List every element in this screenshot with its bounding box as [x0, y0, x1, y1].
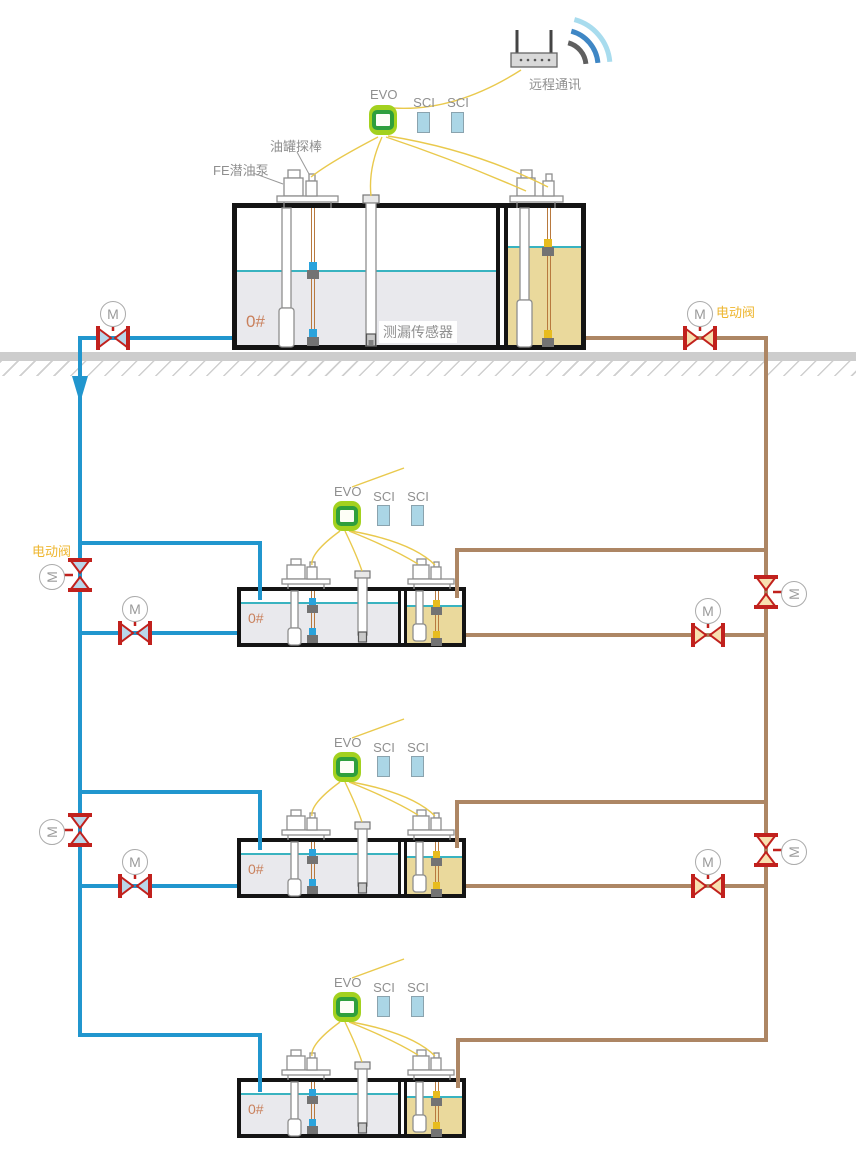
sci-module [377, 756, 390, 777]
fuel-grade-label: 0# [246, 312, 265, 332]
sci-module [411, 505, 424, 526]
electric-valve-label: 电动阀 [32, 541, 71, 560]
motor-label: M [129, 601, 141, 617]
sci-module [417, 112, 430, 133]
electric-valve-label: 电动阀 [716, 302, 755, 321]
underground-tank-2 [237, 587, 466, 647]
evo-screen [372, 110, 394, 130]
evo-screen [336, 506, 358, 526]
tank-divider-wall [496, 208, 500, 345]
motor-indicator: M [687, 301, 713, 327]
evo-screen [336, 757, 358, 777]
flow-direction-arrow [72, 376, 88, 403]
gasoline-liquid [407, 607, 462, 643]
diesel-liquid [241, 604, 398, 643]
motor-indicator: M [100, 301, 126, 327]
motor-indicator: M [39, 819, 65, 845]
ground-surface [0, 352, 856, 361]
sci-label: SCI [371, 980, 397, 995]
motor-indicator: M [781, 839, 807, 865]
sci-module [411, 996, 424, 1017]
sci-module [377, 505, 390, 526]
supply-pipeline-blue [80, 338, 260, 1092]
sci-module [411, 756, 424, 777]
motor-indicator: M [695, 849, 721, 875]
motor-indicator: M [695, 598, 721, 624]
gasoline-liquid [407, 1098, 462, 1134]
console-wiring [311, 70, 548, 196]
ground-hatching [0, 361, 856, 376]
sci-label: SCI [411, 95, 437, 110]
underground-tank-4 [237, 1078, 466, 1138]
evo-label: EVO [370, 87, 397, 102]
evo-console [333, 992, 361, 1022]
motor-indicator: M [781, 581, 807, 607]
motor-label: M [44, 571, 60, 583]
sci-module [377, 996, 390, 1017]
fuel-station-piping-diagram: M M M M M M M M M M 远程通讯 EVO SCI SCI 油罐探… [0, 0, 856, 1154]
motor-label: M [702, 603, 714, 619]
sci-label: SCI [371, 740, 397, 755]
sci-label: SCI [371, 489, 397, 504]
motor-label: M [107, 306, 119, 322]
motor-label: M [44, 826, 60, 838]
sci-module [451, 112, 464, 133]
sci-label: SCI [405, 489, 431, 504]
wifi-signal-icon [568, 20, 610, 64]
evo-label: EVO [334, 975, 361, 990]
gasoline-liquid [407, 858, 462, 894]
diesel-liquid [241, 1095, 398, 1134]
leak-sensor-label: 测漏传感器 [379, 321, 457, 343]
diesel-liquid [237, 272, 496, 345]
evo-screen [336, 997, 358, 1017]
diesel-liquid [241, 855, 398, 894]
evo-console [333, 752, 361, 782]
fuel-grade-label: 0# [248, 610, 264, 626]
sci-label: SCI [405, 740, 431, 755]
fuel-grade-label: 0# [248, 861, 264, 877]
motor-indicator: M [39, 564, 65, 590]
motor-label: M [786, 846, 802, 858]
evo-label: EVO [334, 735, 361, 750]
motor-label: M [702, 854, 714, 870]
fuel-grade-label: 0# [248, 1101, 264, 1117]
underground-tank-3 [237, 838, 466, 898]
motor-label: M [786, 588, 802, 600]
tank-divider-wall [398, 1082, 401, 1134]
tank-probe-label: 油罐探棒 [270, 136, 322, 155]
sci-label: SCI [445, 95, 471, 110]
sci-label: SCI [405, 980, 431, 995]
motor-indicator: M [122, 849, 148, 875]
motor-label: M [694, 306, 706, 322]
remote-comm-label: 远程通讯 [529, 74, 581, 93]
motor-label: M [129, 854, 141, 870]
tank-divider-wall [398, 591, 401, 643]
evo-console [369, 105, 397, 135]
evo-label: EVO [334, 484, 361, 499]
wireless-router [511, 30, 557, 67]
tank-divider-wall [398, 842, 401, 894]
return-pipeline-brown [457, 338, 766, 1088]
motor-indicator: M [122, 596, 148, 622]
gasoline-liquid [508, 248, 581, 345]
fe-pump-label: FE潜油泵 [213, 160, 269, 179]
evo-console [333, 501, 361, 531]
